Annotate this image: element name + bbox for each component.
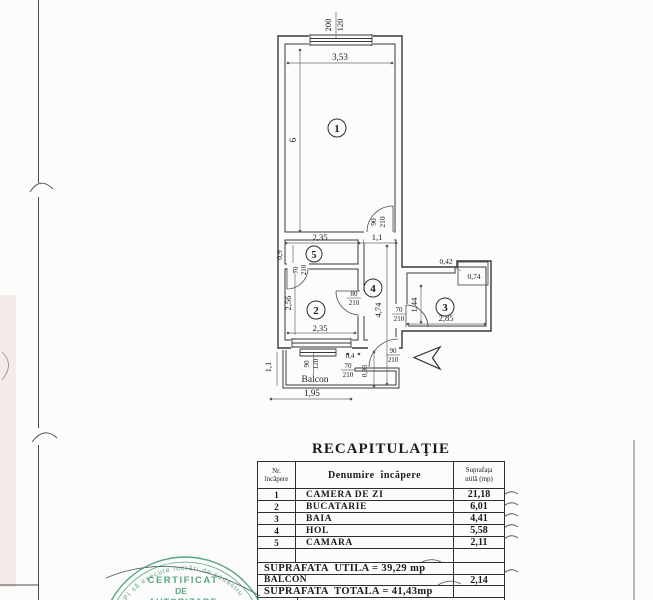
row-nr: 5 <box>258 537 296 548</box>
label-camara-door-height: 210 <box>300 264 308 275</box>
table-row: 4 HOL 5,58 <box>258 525 504 537</box>
table-row: 3 BAIA 4,41 <box>258 513 504 525</box>
balcon-area: 2,14 <box>453 575 504 585</box>
room-number-camara: 5 <box>312 250 317 261</box>
header-suprafata-line1: Suprafaţa <box>466 466 493 475</box>
header-suprafata: Suprafaţa utilă (mp) <box>453 462 504 488</box>
table-header-row: Nr. încăpere Denumire încăpere Suprafaţa… <box>258 462 504 489</box>
label-living-door-height: 210 <box>378 216 387 228</box>
table-row: 5 CAMARA 2,11 <box>258 537 504 549</box>
scanned-floor-plan-page: { "plan": { "room_numbers": ["1", "2", "… <box>0 0 653 600</box>
dim-kitchen-depth: 2,56 <box>283 296 293 311</box>
svg-text:210: 210 <box>349 299 360 307</box>
dim-hall-length: 4,74 <box>373 302 383 318</box>
empty-row <box>258 549 504 563</box>
header-nr: Nr. încăpere <box>258 462 296 488</box>
balcon-label: BALCON <box>258 575 453 585</box>
dim-bath-width: 2,85 <box>439 313 454 323</box>
room-number-hall: 4 <box>370 283 376 295</box>
table-row: 1 CAMERA DE ZI 21,18 <box>258 489 504 501</box>
svg-text:80: 80 <box>351 290 359 298</box>
suprafata-totala-row: SUPRAFATA TOTALA = 41,43mp <box>258 586 504 598</box>
balcon-row: BALCON 2,14 <box>258 575 504 586</box>
label-balcony-door: 70 210 <box>341 362 355 379</box>
dim-bath-depth: 1,44 <box>409 297 419 313</box>
dim-entry-depth: 0,93 <box>361 364 369 377</box>
row-nr: 1 <box>258 489 296 500</box>
balcony-label: Balcon <box>302 375 329 385</box>
table-title: RECAPITULAŢIE <box>300 441 462 458</box>
row-nr: 2 <box>258 501 296 512</box>
row-area: 2,11 <box>453 537 504 548</box>
scan-fold-line <box>0 0 57 600</box>
row-name: HOL <box>296 525 453 536</box>
row-area: 21,18 <box>453 489 504 500</box>
label-balcony-window-width: 90 <box>303 360 311 368</box>
walls <box>278 36 491 348</box>
dim-camara-width: 2,35 <box>313 232 328 242</box>
svg-text:210: 210 <box>394 315 405 323</box>
svg-text:70: 70 <box>345 362 353 370</box>
row-area: 4,41 <box>453 513 504 524</box>
svg-text:210: 210 <box>343 371 354 379</box>
label-camara-door-width: 70 <box>292 266 300 274</box>
svg-text:90: 90 <box>390 347 398 355</box>
row-name: CAMARA <box>296 537 453 548</box>
dim-bath-notch-width: 0,74 <box>467 272 480 281</box>
header-nr-line1: Nr. <box>272 467 281 475</box>
dim-room1-width: 3,53 <box>332 52 348 62</box>
row-nr: 3 <box>258 513 296 524</box>
row-name: BUCATARIE <box>296 501 453 512</box>
header-suprafata-line2: utilă (mp) <box>465 475 493 484</box>
row-area: 5,58 <box>453 525 504 536</box>
dim-camara-depth: 0,9 <box>275 250 284 260</box>
svg-text:70: 70 <box>396 306 404 314</box>
suprafata-utila-text: SUPRAFATA UTILA = 39,29 mp <box>258 563 453 574</box>
dim-kitchen-width: 2,35 <box>313 323 328 333</box>
dim-entry-wall: 0,4 <box>346 352 355 360</box>
room-number-living: 1 <box>334 123 340 135</box>
wall-openings <box>287 34 408 349</box>
row-nr: 4 <box>258 525 296 536</box>
table-row: 2 BUCATARIE 6,01 <box>258 501 504 513</box>
dim-hall-width: 1,1 <box>372 232 383 242</box>
room-number-kitchen: 2 <box>313 305 319 317</box>
suprafata-totala-text: SUPRAFATA TOTALA = 41,43mp <box>258 586 453 597</box>
label-living-door-width: 90 <box>369 218 378 226</box>
dim-balcony-width: 1,95 <box>304 388 320 398</box>
header-denumire: Denumire încăpere <box>296 462 453 488</box>
recap-table: Nr. încăpere Denumire încăpere Suprafaţa… <box>257 461 505 600</box>
label-top-window-height: 120 <box>335 19 345 32</box>
label-top-window-width: 200 <box>323 19 333 32</box>
svg-text:210: 210 <box>388 356 399 364</box>
header-nr-line2: încăpere <box>265 475 289 483</box>
suprafata-utila-row: SUPRAFATA UTILA = 39,29 mp <box>258 563 504 575</box>
entrance-arrow <box>414 347 440 369</box>
row-name: BAIA <box>296 513 453 524</box>
label-entrance-door: 90 210 <box>386 347 400 364</box>
dim-balcony-depth: 1,1 <box>263 362 273 373</box>
row-area: 6,01 <box>453 501 504 512</box>
dim-room1-length: 6 <box>288 137 298 142</box>
row-name: CAMERA DE ZI <box>296 489 453 500</box>
dim-bath-notch-offset: 0,42 <box>439 257 452 266</box>
